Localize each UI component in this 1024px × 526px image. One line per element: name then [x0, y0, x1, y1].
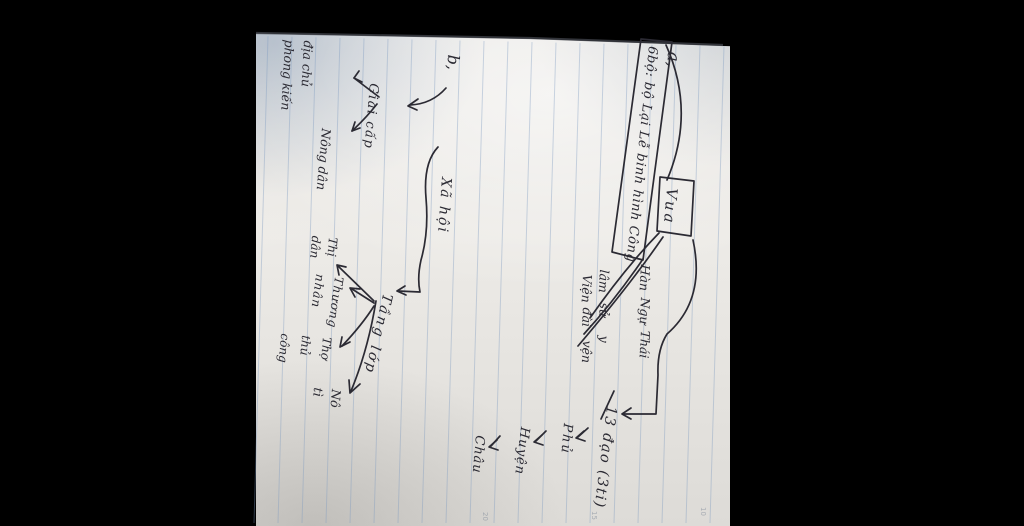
- institution-syllable: sử: [595, 302, 612, 317]
- stratum-child-thuong-nhan: Thương nhân: [303, 273, 348, 330]
- margin-number: 15: [589, 511, 598, 520]
- landlord-line: phong kiến: [276, 39, 298, 111]
- paper-edge-line: [256, 33, 723, 45]
- margin-number: 20: [480, 512, 489, 521]
- section-a-label: a,: [661, 51, 684, 67]
- stratum-line: công: [272, 333, 295, 364]
- admin-chain-item-chau: Châu: [467, 435, 487, 475]
- institution-syllable: Thái: [635, 330, 653, 359]
- section-b-label: b,: [442, 54, 463, 70]
- stratum-child-no-ti: Nô tì: [307, 387, 345, 409]
- institution-syllable: đài: [578, 307, 595, 327]
- admin-chain-item-phu: Phủ: [555, 423, 575, 456]
- landlord-label: địa chủ phong kiến: [276, 39, 317, 112]
- stratum-line: Thợ: [314, 336, 337, 367]
- stratum-line: thủ: [293, 334, 316, 365]
- institution-syllable: vện: [578, 340, 595, 363]
- stratum-line: dân: [304, 235, 323, 259]
- institution-syllable: y: [595, 335, 612, 343]
- photo-of-notebook: a, 6bộ: bộ Lại Lễ binh hình Công Vua Hàn…: [0, 0, 1024, 526]
- stratum-line: Thị: [322, 236, 341, 260]
- landlord-line: địa chủ: [295, 40, 317, 112]
- institution-syllable: lâm: [595, 269, 612, 293]
- institution-syllable: Viện: [577, 274, 595, 303]
- institution-syllable: Ngự: [635, 297, 653, 325]
- connector-king-provinces: [624, 240, 696, 414]
- stratum-child-thi-dan: Thị dân: [304, 235, 341, 261]
- stratum-line: tì: [307, 387, 327, 407]
- stratum-line: Nô: [325, 388, 345, 408]
- stratum-child-tho-thu-cong: Thợ thủ công: [272, 333, 337, 368]
- king-label: Vua: [658, 187, 681, 226]
- arrow-b-to-society: [410, 88, 446, 105]
- arrowhead: [354, 71, 362, 82]
- institution-syllable: Hàn: [635, 264, 653, 291]
- margin-number: 10: [698, 507, 707, 516]
